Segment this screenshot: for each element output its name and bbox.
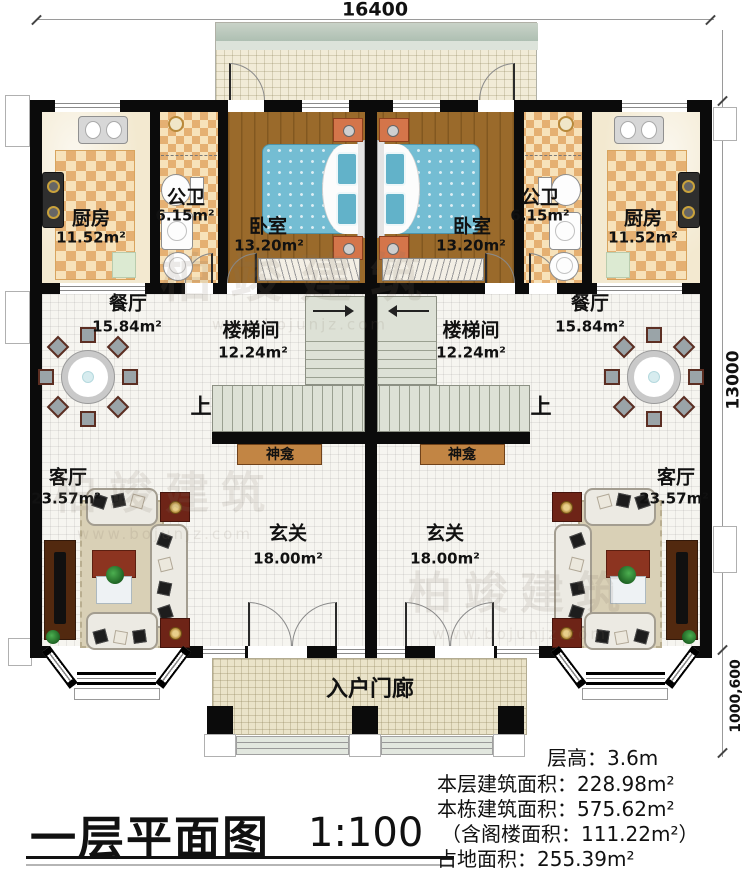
stair-arrow-head — [388, 305, 397, 317]
tv — [54, 552, 66, 624]
dining-chair — [646, 411, 662, 427]
info-footprint-area: 占地面积：255.39m² — [437, 843, 634, 872]
sink-basin — [85, 121, 101, 139]
stairs-lower-flight — [377, 385, 530, 432]
room-area-bathroom: 6.15m² — [155, 209, 214, 224]
nightstand-knob — [343, 243, 355, 255]
room-label-bedroom: 卧室 — [453, 218, 491, 237]
column-base — [349, 734, 381, 757]
tv — [676, 552, 688, 624]
lazy-susan — [82, 371, 94, 383]
top-dimension-label: 16400 — [342, 1, 408, 20]
burner — [682, 180, 695, 193]
basin-bowl — [556, 257, 573, 274]
unit-right — [371, 100, 712, 658]
burner — [47, 206, 60, 219]
nightstand — [333, 236, 363, 260]
room-label-kitchen: 厨房 — [72, 210, 110, 229]
sofa — [150, 524, 188, 628]
dimension-tick — [31, 15, 42, 26]
cushion — [569, 532, 586, 549]
stair-landing — [378, 297, 436, 333]
room-label-bathroom: 公卫 — [521, 189, 559, 208]
stove — [678, 172, 700, 228]
pillow — [384, 152, 406, 186]
window — [393, 100, 440, 112]
cushion — [93, 629, 109, 645]
burner — [682, 206, 695, 219]
terrace-door-arc — [229, 63, 265, 101]
table-medallion — [560, 627, 573, 640]
headboard — [357, 140, 365, 238]
sink-basin — [620, 121, 636, 139]
porch-steps — [236, 736, 349, 755]
stairs-lower-flight — [212, 385, 365, 432]
terrace-edge-band — [216, 41, 538, 50]
bay-window — [77, 672, 156, 685]
burner — [47, 180, 60, 193]
dining-table — [627, 350, 681, 404]
sofa — [86, 612, 158, 650]
window — [497, 646, 539, 658]
door-opening — [185, 283, 213, 294]
room-label-dining: 餐厅 — [109, 295, 147, 314]
dining-chair — [604, 369, 620, 385]
room-area-foyer: 18.00m² — [410, 552, 480, 567]
room-label-foyer: 玄关 — [269, 525, 307, 544]
pillow — [384, 192, 406, 226]
terrace-door-opening — [228, 100, 264, 112]
door-opening — [227, 283, 257, 294]
nightstand-knob — [387, 125, 399, 137]
coffee-table — [606, 550, 650, 606]
cushion — [156, 532, 173, 549]
cushion — [130, 494, 146, 510]
cushion — [111, 493, 126, 508]
room-label-bathroom: 公卫 — [167, 189, 205, 208]
room-area-dining: 15.84m² — [555, 320, 625, 335]
cushion — [595, 629, 610, 644]
kitchen-counter — [112, 252, 136, 278]
cushion — [158, 557, 174, 573]
room-area-stairwell: 12.24m² — [218, 346, 288, 361]
window — [302, 100, 349, 112]
plant — [46, 630, 60, 644]
dining-chair — [122, 369, 138, 385]
column-base — [493, 734, 525, 757]
nightstand — [379, 236, 409, 260]
cushion — [570, 581, 585, 596]
dining-chair — [688, 369, 704, 385]
room-label-dining: 餐厅 — [571, 295, 609, 314]
kitchen-sink — [614, 116, 664, 144]
bay-window-sill — [582, 688, 668, 700]
dimension-tick — [705, 15, 716, 26]
window — [622, 100, 687, 112]
drawing-scale: 1:100 — [308, 810, 423, 856]
door-opening — [485, 283, 515, 294]
room-area-living: 23.57m² — [31, 492, 101, 507]
plant — [682, 630, 696, 644]
nightstand-knob — [387, 243, 399, 255]
cushion — [113, 630, 128, 645]
sofa — [584, 612, 656, 650]
porch-column — [207, 706, 233, 734]
exterior-platform — [713, 107, 737, 141]
title-underline-shadow — [26, 864, 454, 866]
info-floor-height: 层高：3.6m — [547, 742, 658, 771]
room-area-bathroom: 6.15m² — [510, 209, 569, 224]
exterior-platform — [5, 95, 30, 147]
dining-chair — [80, 411, 96, 427]
side-table — [160, 492, 190, 522]
kitchen-sink — [78, 116, 128, 144]
terrace-door-arc — [479, 63, 515, 101]
sink-basin — [106, 121, 122, 139]
wash-basin — [163, 252, 193, 281]
stair-up-label: 上 — [531, 397, 552, 418]
exterior-platform — [5, 291, 30, 344]
cushion — [634, 629, 650, 645]
dining-chair — [38, 369, 54, 385]
entry-door-opening — [248, 646, 307, 658]
bay-window — [586, 672, 665, 685]
cushion — [614, 630, 629, 645]
basin-bowl — [169, 257, 186, 274]
cushion — [616, 493, 631, 508]
sink-basin — [641, 121, 657, 139]
bay-window-side — [155, 646, 191, 689]
exterior-platform — [713, 526, 737, 573]
shower-divider — [161, 155, 217, 156]
nightstand — [379, 118, 409, 142]
stair-direction-arrow — [313, 310, 347, 312]
cushion — [597, 494, 613, 510]
plant — [618, 566, 636, 584]
interior-wall — [218, 112, 228, 283]
room-label-stairwell: 楼梯间 — [442, 322, 499, 341]
room-label-foyer: 玄关 — [426, 525, 464, 544]
nightstand-knob — [343, 125, 355, 137]
pillow — [336, 152, 358, 186]
side-table — [552, 618, 582, 648]
wardrobe — [258, 258, 360, 281]
side-table — [160, 618, 190, 648]
stair-up-label: 上 — [191, 397, 212, 418]
porch-column — [498, 706, 524, 734]
pillow — [336, 192, 358, 226]
terrace-door-opening — [478, 100, 514, 112]
side-table — [552, 492, 582, 522]
porch-column — [352, 706, 378, 734]
stair-wall — [371, 432, 530, 444]
bay-window-side — [42, 646, 78, 689]
table-medallion — [169, 501, 182, 514]
floor-drain — [168, 116, 184, 132]
room-area-stairwell: 12.24m² — [436, 346, 506, 361]
plant — [106, 566, 124, 584]
shrine-label: 神龛 — [448, 448, 476, 462]
interior-wall — [582, 112, 592, 283]
bay-window-side — [551, 646, 587, 689]
sofa — [554, 524, 592, 628]
room-label-kitchen: 厨房 — [624, 210, 662, 229]
wardrobe — [382, 258, 484, 281]
shrine-label: 神龛 — [266, 448, 294, 462]
room-area-living: 23.57m² — [639, 492, 709, 507]
stair-wall — [212, 432, 371, 444]
title-underline — [26, 856, 454, 859]
room-area-kitchen: 11.52m² — [56, 231, 126, 246]
cushion — [157, 581, 172, 596]
bay-window-sill — [74, 688, 160, 700]
window — [203, 646, 245, 658]
window — [377, 646, 405, 658]
stair-landing — [306, 297, 364, 333]
door-opening — [529, 283, 557, 294]
table-medallion — [169, 627, 182, 640]
stair-direction-arrow — [395, 310, 429, 312]
stove — [42, 172, 64, 228]
floor-drain — [558, 116, 574, 132]
floor-plan: 16400 13000 1000,600 — [0, 0, 750, 883]
interior-wall — [150, 112, 160, 283]
cushion — [569, 557, 585, 573]
table-medallion — [560, 501, 573, 514]
nightstand — [333, 118, 363, 142]
exterior-platform — [8, 638, 32, 666]
room-label-living: 客厅 — [49, 469, 87, 488]
porch-steps — [381, 736, 493, 755]
dining-chair — [646, 327, 662, 343]
shower-divider — [525, 155, 581, 156]
dining-table — [61, 350, 115, 404]
room-area-bedroom: 13.20m² — [436, 239, 506, 254]
kitchen-counter — [606, 252, 630, 278]
porch-label: 入户门廊 — [326, 679, 414, 701]
kitchen-pass-window — [597, 283, 682, 294]
stair-arrow-head — [345, 305, 354, 317]
right-dimension-label: 13000 — [726, 350, 743, 409]
room-label-bedroom: 卧室 — [249, 218, 287, 237]
room-label-living: 客厅 — [657, 469, 695, 488]
room-label-stairwell: 楼梯间 — [222, 322, 279, 341]
cushion — [132, 629, 147, 644]
lazy-susan — [648, 371, 660, 383]
unit-left — [30, 100, 371, 658]
entry-door-opening — [435, 646, 494, 658]
room-area-dining: 15.84m² — [92, 320, 162, 335]
coffee-table — [92, 550, 136, 606]
wash-basin — [549, 252, 579, 281]
terrace-edge-band — [216, 23, 538, 41]
window — [337, 646, 365, 658]
room-area-kitchen: 11.52m² — [608, 231, 678, 246]
right-porch-dimension-label: 1000,600 — [729, 659, 743, 733]
window — [55, 100, 120, 112]
column-base — [204, 734, 236, 757]
room-area-bedroom: 13.20m² — [234, 239, 304, 254]
room-area-foyer: 18.00m² — [253, 552, 323, 567]
bay-window-side — [664, 646, 700, 689]
